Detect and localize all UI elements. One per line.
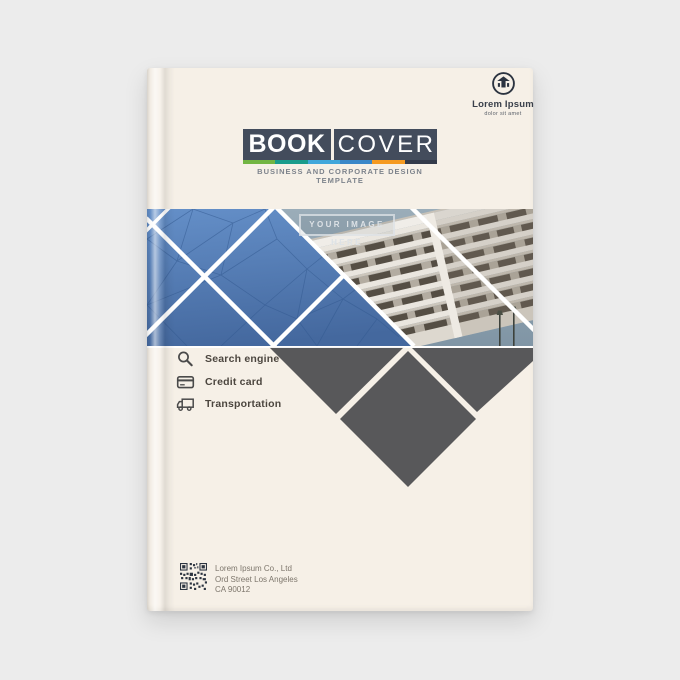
- footer: Lorem Ipsum Co., Ltd Ord Street Los Ange…: [180, 563, 298, 596]
- feature-list: Search engine Credit card T: [176, 348, 281, 416]
- book-title: BOOK COVER: [243, 129, 437, 160]
- credit-card-icon: [176, 373, 195, 391]
- title-word-secondary: COVER: [334, 129, 437, 160]
- logo-tagline: dolor sit amet: [461, 111, 545, 117]
- footer-address-line1: Ord Street Los Angeles: [215, 575, 298, 586]
- stripe-segment: [372, 160, 404, 164]
- brand-logo: Lorem Ipsum dolor sit amet: [461, 71, 545, 117]
- search-icon: [176, 350, 195, 368]
- qr-code: [180, 563, 207, 590]
- feature-label: Credit card: [205, 376, 263, 388]
- stripe-segment: [340, 160, 372, 164]
- stripe-segment: [275, 160, 307, 164]
- title-subtitle: BUSINESS AND CORPORATE DESIGN TEMPLATE: [240, 167, 440, 185]
- logo-name: Lorem Ipsum: [461, 99, 545, 110]
- list-item: Transportation: [176, 393, 281, 416]
- mockup-stage: Lorem Ipsum dolor sit amet BOOK COVER BU…: [0, 0, 680, 680]
- stripe-segment: [243, 160, 275, 164]
- title-stripe: [243, 160, 437, 164]
- stripe-segment: [405, 160, 437, 164]
- footer-company: Lorem Ipsum Co., Ltd: [215, 564, 298, 575]
- feature-label: Transportation: [205, 398, 281, 410]
- list-item: Credit card: [176, 371, 281, 394]
- list-item: Search engine: [176, 348, 281, 371]
- logo-icon: [491, 71, 516, 96]
- feature-label: Search engine: [205, 353, 279, 365]
- truck-icon: [176, 395, 195, 413]
- image-placeholder-label: YOUR IMAGE HERE: [299, 214, 395, 236]
- title-word-primary: BOOK: [243, 129, 331, 160]
- stripe-segment: [308, 160, 340, 164]
- footer-address-line2: CA 90012: [215, 585, 298, 596]
